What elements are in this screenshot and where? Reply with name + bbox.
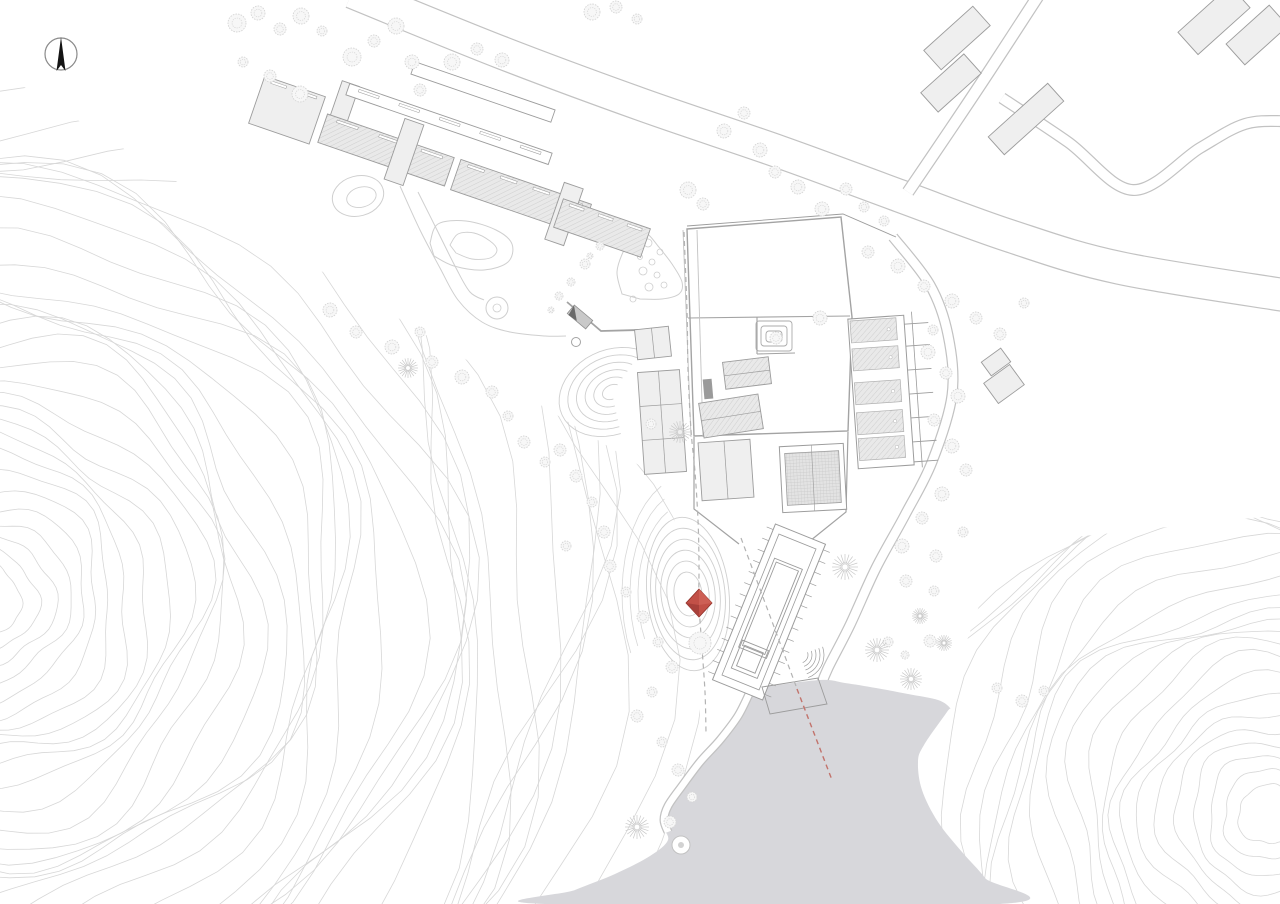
contour-line — [1029, 589, 1280, 904]
berth-tick — [744, 583, 750, 586]
tree — [471, 43, 483, 55]
marker-highlight — [699, 589, 712, 605]
tree — [518, 436, 530, 448]
garden-path-loop-inner — [493, 304, 501, 312]
contour-line — [0, 424, 148, 756]
tree — [891, 259, 905, 273]
contour-line — [0, 411, 171, 772]
tree — [495, 53, 509, 67]
tree — [930, 550, 942, 562]
garden-hut — [567, 305, 593, 329]
tree — [672, 764, 684, 776]
tree — [753, 143, 767, 157]
tree-burst — [398, 358, 418, 378]
tree — [900, 575, 912, 587]
tree — [813, 311, 827, 325]
amphitheater-ring — [639, 513, 737, 675]
contour-line — [1102, 637, 1280, 904]
garden-pond — [430, 221, 513, 271]
berth-tick — [819, 561, 825, 564]
building — [698, 439, 754, 500]
tree — [960, 464, 972, 476]
building — [723, 357, 772, 389]
tree — [862, 246, 874, 258]
stair-step — [803, 652, 808, 662]
contour-line — [1238, 784, 1280, 844]
tree — [945, 294, 959, 308]
contour-line — [0, 0, 629, 904]
tree — [567, 278, 575, 286]
berth-tick — [708, 672, 714, 675]
tree — [274, 23, 286, 35]
tree — [548, 307, 554, 313]
garden-path-loop — [486, 297, 508, 319]
tree — [958, 527, 968, 537]
berth-tick — [814, 572, 820, 575]
tree — [653, 637, 663, 647]
tree — [901, 651, 909, 659]
tree — [415, 327, 425, 337]
berth-tick — [778, 661, 784, 664]
amphitheater-ring — [664, 559, 713, 629]
garden-pond — [328, 170, 389, 222]
berth-tick — [731, 616, 737, 619]
tree — [666, 661, 678, 673]
tree — [657, 737, 667, 747]
berth-tick — [713, 660, 719, 663]
tree — [738, 107, 750, 119]
berth-tick — [796, 617, 802, 620]
tree — [1016, 695, 1028, 707]
contour-line — [0, 29, 594, 904]
tree — [687, 792, 697, 802]
tree — [916, 512, 928, 524]
tree — [228, 14, 246, 32]
tree-burst — [912, 608, 928, 624]
tree — [970, 312, 982, 324]
tree — [680, 182, 696, 198]
berth-tick — [735, 605, 741, 608]
berth-tick — [805, 594, 811, 597]
tree — [596, 242, 604, 250]
contour-line — [0, 195, 361, 904]
tree-burst — [900, 668, 922, 690]
berth-tick — [753, 560, 759, 563]
berth-tick — [801, 605, 807, 608]
contour-line — [983, 533, 1280, 904]
tree — [632, 14, 642, 24]
tree — [368, 35, 380, 47]
tree — [951, 389, 965, 403]
contour-line — [0, 228, 350, 904]
tree — [1039, 686, 1049, 696]
contour-line — [910, 495, 1280, 904]
tree — [637, 611, 649, 623]
contour-line — [0, 272, 317, 904]
tree — [598, 526, 610, 538]
garden-pond-inner — [450, 232, 497, 259]
tree — [929, 586, 939, 596]
building — [249, 76, 326, 144]
berth-tick — [774, 672, 780, 675]
north-arrow — [45, 37, 77, 71]
tree — [697, 198, 709, 210]
contour-line — [1223, 769, 1280, 859]
berth-tick — [762, 538, 768, 541]
contour-line — [1008, 562, 1280, 904]
bay-unit — [854, 380, 901, 405]
tree — [293, 8, 309, 24]
contour-line — [0, 521, 71, 689]
building — [637, 370, 686, 475]
contour-line — [0, 362, 224, 850]
contour-line — [0, 469, 108, 730]
tree — [940, 367, 952, 379]
spur-wall — [904, 323, 928, 325]
contour-line — [0, 144, 462, 904]
building — [703, 379, 713, 399]
tree — [317, 26, 327, 36]
tree-burst — [625, 815, 649, 839]
building — [988, 83, 1064, 154]
berth-tick — [810, 583, 816, 586]
tree — [587, 253, 593, 259]
tree — [350, 326, 362, 338]
spur-wall — [908, 368, 932, 370]
tree — [945, 439, 959, 453]
stair-step — [807, 648, 820, 674]
tree — [935, 487, 949, 501]
tree — [555, 292, 563, 300]
tree — [343, 48, 361, 66]
site-plan-document — [0, 0, 1280, 904]
tree — [840, 183, 852, 195]
contour-line — [0, 87, 478, 904]
tree — [414, 84, 426, 96]
tree — [554, 444, 566, 456]
berth-tick — [740, 594, 746, 597]
tree — [388, 18, 404, 34]
tree — [992, 683, 1002, 693]
tree — [1019, 298, 1029, 308]
contour-line — [0, 534, 58, 668]
tree — [770, 332, 782, 344]
berth-tick — [792, 628, 798, 631]
walled-court — [779, 443, 846, 512]
tree — [928, 414, 940, 426]
contour-line — [0, 445, 127, 739]
tree — [928, 325, 938, 335]
tree — [385, 340, 399, 354]
tree — [238, 57, 248, 67]
tree-burst — [832, 554, 858, 580]
contour-line — [1065, 619, 1280, 904]
bay-unit — [856, 410, 903, 435]
tree — [251, 6, 265, 20]
tree — [584, 4, 600, 20]
tree — [426, 356, 438, 368]
tree — [646, 419, 656, 429]
building — [635, 326, 672, 359]
spur-wall — [913, 440, 937, 442]
site-marker — [686, 589, 712, 617]
tree — [580, 259, 590, 269]
tree — [921, 345, 935, 359]
tree — [769, 166, 781, 178]
tree — [455, 370, 469, 384]
compass-needle-icon — [57, 37, 66, 71]
tree — [664, 816, 676, 828]
contour-line — [0, 287, 305, 904]
contour-line — [0, 9, 561, 904]
bay-unit — [858, 435, 905, 460]
contour-line — [0, 304, 287, 878]
tree-burst — [936, 635, 952, 651]
bay-unit — [850, 318, 897, 343]
contour-line — [0, 156, 467, 904]
tree — [924, 635, 936, 647]
tree — [604, 560, 616, 572]
tree — [879, 216, 889, 226]
bay-building — [848, 311, 939, 472]
contour-line — [0, 381, 225, 833]
site-plan-canvas — [0, 0, 1280, 904]
contour-line — [0, 176, 382, 904]
corner-rotunda — [572, 338, 581, 347]
tree — [405, 55, 419, 69]
walkway-terminus-dot — [678, 842, 684, 848]
tree — [918, 280, 930, 292]
tree — [895, 539, 909, 553]
contour-fields — [0, 0, 1280, 904]
tree — [570, 470, 582, 482]
tree — [444, 54, 460, 70]
tree — [587, 497, 597, 507]
contour-line — [0, 547, 42, 650]
contour-line — [0, 562, 23, 634]
spur-wall — [909, 392, 933, 394]
tree — [717, 124, 731, 138]
berth-tick — [767, 527, 773, 530]
tree — [791, 180, 805, 194]
contour-line — [0, 491, 96, 722]
tree — [859, 202, 869, 212]
contour-line — [0, 393, 216, 813]
tree — [540, 457, 550, 467]
contour-line — [0, 16, 539, 904]
contour-line — [1120, 670, 1280, 904]
tree — [994, 328, 1006, 340]
tree — [689, 632, 711, 654]
tree — [323, 303, 337, 317]
tree — [610, 1, 622, 13]
tree — [815, 202, 829, 216]
tree — [264, 70, 276, 82]
tree — [486, 386, 498, 398]
tree — [503, 411, 513, 421]
tree — [883, 637, 893, 647]
berth-tick — [758, 549, 764, 552]
amphitheater — [639, 513, 737, 675]
tree — [647, 687, 657, 697]
contour-line — [1193, 743, 1280, 896]
contour-line — [0, 268, 323, 904]
bay-unit — [852, 346, 899, 371]
berth-tick — [787, 639, 793, 642]
tree — [561, 541, 571, 551]
tree — [292, 86, 308, 102]
berth-tick — [823, 550, 829, 553]
contour-line — [980, 517, 1280, 904]
tree — [631, 710, 643, 722]
tree — [621, 587, 631, 597]
